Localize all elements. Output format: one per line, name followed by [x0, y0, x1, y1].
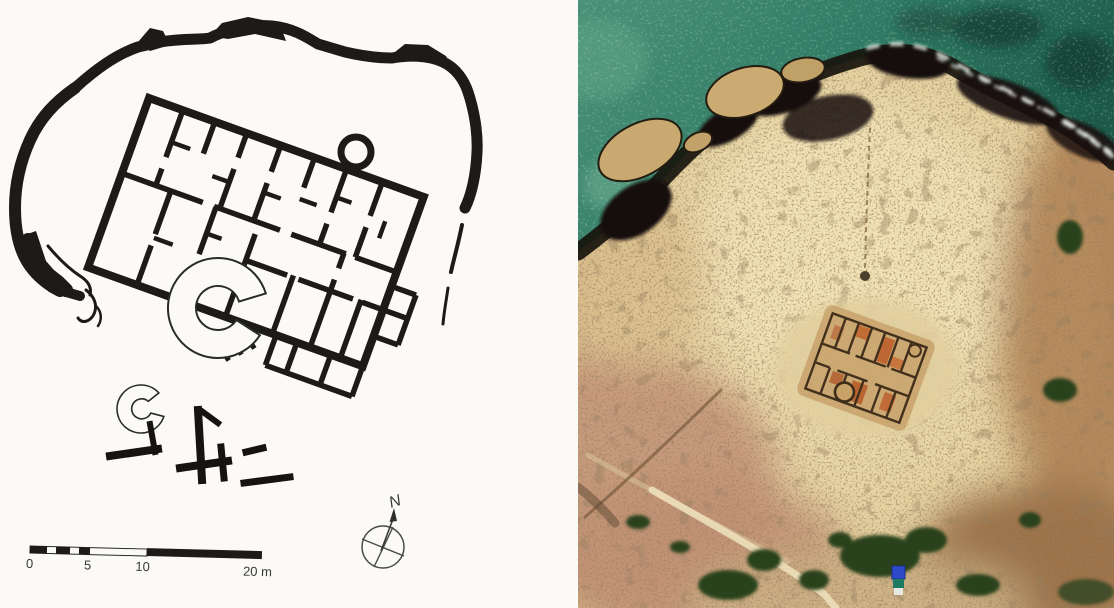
building-upper-rooms	[156, 110, 383, 257]
site-plan-panel: 0 5 10 20 m N	[0, 0, 578, 608]
north-label: N	[387, 492, 404, 512]
aerial-photo-panel	[578, 0, 1114, 608]
building-plan	[74, 98, 448, 413]
building-outer-wall	[88, 98, 424, 366]
scale-label-5: 5	[84, 557, 92, 572]
site-plan-drawing: 0 5 10 20 m N	[0, 0, 578, 608]
building-lower-rooms	[137, 191, 397, 366]
dark-pit-spot	[860, 271, 870, 281]
scale-bar: 0 5 10 20 m	[26, 545, 273, 579]
two-panel-figure: 0 5 10 20 m N	[0, 0, 1114, 608]
horseshoe-feature-small	[113, 381, 167, 437]
compass-needle	[381, 519, 393, 551]
scale-label-0: 0	[26, 556, 34, 571]
scale-label-20m: 20 m	[243, 564, 272, 580]
stone-ring-feature	[341, 137, 371, 167]
aerial-photograph	[578, 0, 1114, 608]
scale-label-10: 10	[135, 559, 150, 574]
north-arrow-compass: N	[362, 492, 404, 568]
